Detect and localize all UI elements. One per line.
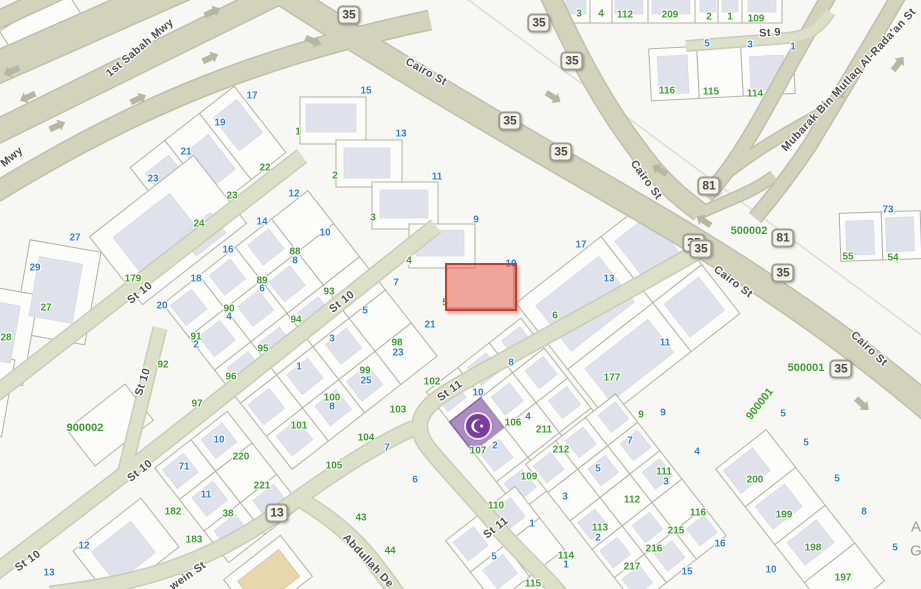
parcel-number[interactable]: 38 bbox=[222, 509, 233, 520]
lot-number[interactable]: 71 bbox=[178, 462, 189, 473]
lot-number[interactable]: 2 bbox=[492, 441, 498, 452]
lot-number[interactable]: 10 bbox=[472, 388, 483, 399]
lot-number[interactable]: 1 bbox=[296, 362, 302, 373]
lot-number[interactable]: 11 bbox=[660, 338, 671, 349]
street-label: Cairo St bbox=[403, 56, 449, 88]
parcel-number[interactable]: 113 bbox=[592, 523, 608, 534]
route-shield: 35 bbox=[689, 240, 712, 259]
lot-number[interactable]: 19 bbox=[214, 118, 225, 129]
lot-number[interactable]: 23 bbox=[392, 348, 403, 359]
parcel-number[interactable]: 43 bbox=[355, 513, 366, 524]
parcel-number[interactable]: 4 bbox=[598, 9, 604, 20]
parcel-number[interactable]: 101 bbox=[291, 421, 308, 432]
parcel-number[interactable]: 104 bbox=[358, 433, 375, 444]
area-code-label[interactable]: 500001 bbox=[788, 362, 825, 374]
parcel-number[interactable]: 54 bbox=[887, 253, 898, 264]
area-code-label[interactable]: 500002 bbox=[731, 225, 768, 237]
street-label: 1st Sabah Mwy bbox=[104, 16, 176, 79]
street-label: Mubarak Bin Mutlaq Al-Rada'an St bbox=[779, 6, 918, 154]
lot-number[interactable]: 3 bbox=[562, 492, 568, 503]
lot-number[interactable]: 8 bbox=[861, 507, 867, 518]
lot-number[interactable]: 4 bbox=[694, 447, 700, 458]
street-label: Cairo St bbox=[711, 264, 754, 301]
street-label: Mwy bbox=[0, 144, 25, 169]
parcel-number[interactable]: 23 bbox=[226, 191, 237, 202]
lot-number[interactable]: 12 bbox=[78, 541, 89, 552]
lot-number[interactable]: 5 bbox=[803, 438, 809, 449]
parcel-number[interactable]: 55 bbox=[842, 252, 853, 263]
lot-number[interactable]: 27 bbox=[69, 233, 80, 244]
parcel-number[interactable]: 215 bbox=[668, 526, 685, 537]
street-label: St 10 bbox=[125, 458, 155, 485]
route-shield: 35 bbox=[560, 52, 583, 71]
crescent-star-icon bbox=[468, 416, 488, 436]
parcel-number[interactable]: 24 bbox=[193, 219, 204, 230]
parcel-number[interactable]: 106 bbox=[505, 418, 522, 429]
parcel-number[interactable]: 220 bbox=[233, 452, 250, 463]
lot-number[interactable]: 5 bbox=[362, 306, 368, 317]
street-label: St 9 bbox=[759, 26, 782, 39]
parcel-number[interactable]: 115 bbox=[703, 87, 719, 98]
parcel-number[interactable]: 91 bbox=[190, 332, 201, 343]
parcel-number[interactable]: 94 bbox=[290, 315, 301, 326]
street-label: Cairo St bbox=[848, 329, 889, 369]
street-label: Abdullah De bbox=[340, 532, 396, 589]
lot-number[interactable]: 5 bbox=[834, 474, 840, 485]
parcel-number[interactable]: 200 bbox=[747, 475, 764, 486]
lot-number[interactable]: 9 bbox=[660, 408, 666, 419]
lot-number[interactable]: 13 bbox=[395, 129, 406, 140]
parcel-number[interactable]: 6 bbox=[552, 311, 558, 322]
route-shield: 35 bbox=[337, 6, 360, 25]
parcel-number[interactable]: 115 bbox=[525, 579, 541, 589]
lot-number[interactable]: 10 bbox=[319, 228, 330, 239]
lot-number[interactable]: 6 bbox=[412, 475, 418, 486]
parcel-number[interactable]: 109 bbox=[521, 472, 538, 483]
parcel-number[interactable]: 112 bbox=[617, 10, 633, 21]
lot-number[interactable]: 5 bbox=[892, 543, 898, 554]
parcel-number[interactable]: 44 bbox=[384, 546, 395, 557]
lot-number[interactable]: 5 bbox=[491, 552, 497, 563]
lot-number[interactable]: 5 bbox=[780, 409, 786, 420]
lot-number[interactable]: 13 bbox=[603, 274, 614, 285]
lot-number[interactable]: 3 bbox=[747, 40, 753, 51]
lot-number[interactable]: 2 bbox=[595, 533, 601, 544]
lot-number[interactable]: 17 bbox=[575, 240, 586, 251]
parcel-number[interactable]: 93 bbox=[323, 287, 334, 298]
parcel-number[interactable]: 217 bbox=[624, 562, 641, 573]
parcel-number[interactable]: 182 bbox=[165, 507, 182, 518]
lot-number[interactable]: 13 bbox=[43, 568, 54, 579]
lot-number[interactable]: 12 bbox=[288, 189, 299, 200]
lot-number[interactable]: 3 bbox=[663, 477, 669, 488]
parcel-number[interactable]: 92 bbox=[157, 360, 168, 371]
parcel-number[interactable]: 90 bbox=[223, 304, 234, 315]
lot-number[interactable]: 15 bbox=[681, 567, 692, 578]
parcel-number[interactable]: 199 bbox=[776, 510, 793, 521]
mosque-marker[interactable] bbox=[464, 412, 492, 440]
lot-number[interactable]: 9 bbox=[473, 215, 479, 226]
lot-number[interactable]: 7 bbox=[627, 436, 633, 447]
lot-number[interactable]: 11 bbox=[432, 172, 443, 183]
parcel-number[interactable]: 198 bbox=[805, 543, 822, 554]
map-canvas[interactable]: 1st Sabah MwyMwyCairo StCairo StCairo St… bbox=[0, 0, 921, 589]
route-shield: 13 bbox=[265, 504, 288, 523]
parcel-number[interactable]: 107 bbox=[470, 446, 487, 457]
lot-number[interactable]: 29 bbox=[29, 263, 40, 274]
parcel-number[interactable]: 109 bbox=[748, 14, 765, 25]
parcel-number[interactable]: 3 bbox=[576, 9, 582, 20]
parcel-number[interactable]: 99 bbox=[359, 366, 370, 377]
lot-number[interactable]: 18 bbox=[190, 274, 201, 285]
parcel-number[interactable]: 103 bbox=[390, 405, 407, 416]
parcel-number[interactable]: 112 bbox=[624, 495, 640, 506]
parcel-number[interactable]: 221 bbox=[254, 481, 271, 492]
route-shield: 35 bbox=[829, 360, 852, 379]
parcel-number[interactable]: 2 bbox=[706, 12, 712, 23]
parcel-number[interactable]: 2 bbox=[332, 171, 338, 182]
lot-number[interactable]: 73 bbox=[882, 205, 893, 216]
lot-number[interactable]: 5 bbox=[595, 464, 601, 475]
lot-number[interactable]: 20 bbox=[156, 301, 167, 312]
route-shield: 35 bbox=[527, 14, 550, 33]
parcel-number[interactable]: 102 bbox=[424, 377, 441, 388]
lot-number[interactable]: 17 bbox=[246, 91, 257, 102]
lot-number[interactable]: 10 bbox=[213, 435, 224, 446]
parcel-number[interactable]: 28 bbox=[0, 333, 11, 344]
route-shield: 35 bbox=[498, 112, 521, 131]
parcel-number[interactable]: 22 bbox=[259, 163, 270, 174]
area-code-label[interactable]: 900002 bbox=[67, 422, 104, 434]
lot-number[interactable]: 1 bbox=[529, 519, 535, 530]
parcel-number[interactable]: 179 bbox=[125, 274, 142, 285]
lot-number[interactable]: 8 bbox=[508, 358, 514, 369]
parcel-number[interactable]: 197 bbox=[835, 573, 852, 584]
lot-number[interactable]: 23 bbox=[147, 174, 158, 185]
parcel-number[interactable]: 1 bbox=[295, 127, 301, 138]
parcel-number[interactable]: 212 bbox=[553, 445, 570, 456]
lot-number[interactable]: 5 bbox=[704, 39, 710, 50]
lot-number[interactable]: 16 bbox=[714, 539, 725, 550]
parcel-number[interactable]: 183 bbox=[186, 535, 203, 546]
street-label: St 10 bbox=[13, 548, 43, 574]
parcel-number[interactable]: 97 bbox=[191, 399, 202, 410]
parcel-number[interactable]: 116 bbox=[690, 508, 706, 519]
selected-parcel[interactable] bbox=[445, 263, 517, 311]
parcel-number[interactable]: 177 bbox=[604, 373, 621, 384]
parcel-number[interactable]: 105 bbox=[326, 461, 343, 472]
route-shield: 81 bbox=[697, 177, 720, 196]
parcel-number[interactable]: 110 bbox=[488, 501, 504, 512]
lot-number[interactable]: 15 bbox=[360, 86, 371, 97]
edge-label: G bbox=[910, 543, 921, 560]
parcel-number[interactable]: 27 bbox=[40, 303, 51, 314]
area-code-label[interactable]: 900001 bbox=[744, 386, 776, 422]
parcel-number[interactable]: 111 bbox=[656, 467, 672, 478]
parcel-number[interactable]: 114 bbox=[558, 551, 574, 562]
parcel-number[interactable]: 211 bbox=[536, 425, 552, 436]
lot-number[interactable]: 16 bbox=[222, 245, 233, 256]
parcel-number[interactable]: 1 bbox=[727, 12, 733, 23]
lot-number[interactable]: 21 bbox=[180, 147, 191, 158]
edge-label: A bbox=[911, 519, 921, 536]
parcel-number[interactable]: 4 bbox=[406, 256, 412, 267]
lot-number[interactable]: 3 bbox=[329, 334, 335, 345]
lot-number[interactable]: 10 bbox=[765, 565, 776, 576]
route-shield: 35 bbox=[771, 264, 794, 283]
parcel-number[interactable]: 116 bbox=[659, 86, 675, 97]
lot-number[interactable]: 11 bbox=[201, 490, 212, 501]
parcel-number[interactable]: 114 bbox=[747, 89, 763, 100]
parcel-number[interactable]: 98 bbox=[391, 338, 402, 349]
parcel-number[interactable]: 209 bbox=[662, 10, 679, 21]
lot-number[interactable]: 7 bbox=[384, 443, 390, 454]
parcel-number[interactable]: 100 bbox=[324, 393, 341, 404]
street-label: St 11 bbox=[481, 515, 510, 542]
lot-number[interactable]: 14 bbox=[256, 217, 267, 228]
lot-number[interactable]: 4 bbox=[525, 412, 531, 423]
street-label: wein St bbox=[168, 559, 209, 589]
parcel-number[interactable]: 95 bbox=[257, 344, 268, 355]
street-label: St 10 bbox=[133, 367, 153, 398]
parcel-number[interactable]: 9 bbox=[638, 410, 644, 421]
parcel-number[interactable]: 216 bbox=[646, 544, 663, 555]
parcel-number[interactable]: 96 bbox=[225, 372, 236, 383]
route-shield: 35 bbox=[549, 143, 572, 162]
parcel-number[interactable]: 89 bbox=[256, 276, 267, 287]
street-label: Cairo St bbox=[628, 158, 664, 202]
lot-number[interactable]: 1 bbox=[790, 42, 796, 53]
lot-number[interactable]: 7 bbox=[393, 278, 399, 289]
lot-number[interactable]: 25 bbox=[360, 376, 371, 387]
parcel-number[interactable]: 88 bbox=[289, 247, 300, 258]
parcel-number[interactable]: 3 bbox=[370, 213, 376, 224]
route-shield: 81 bbox=[771, 229, 794, 248]
lot-number[interactable]: 21 bbox=[424, 320, 435, 331]
